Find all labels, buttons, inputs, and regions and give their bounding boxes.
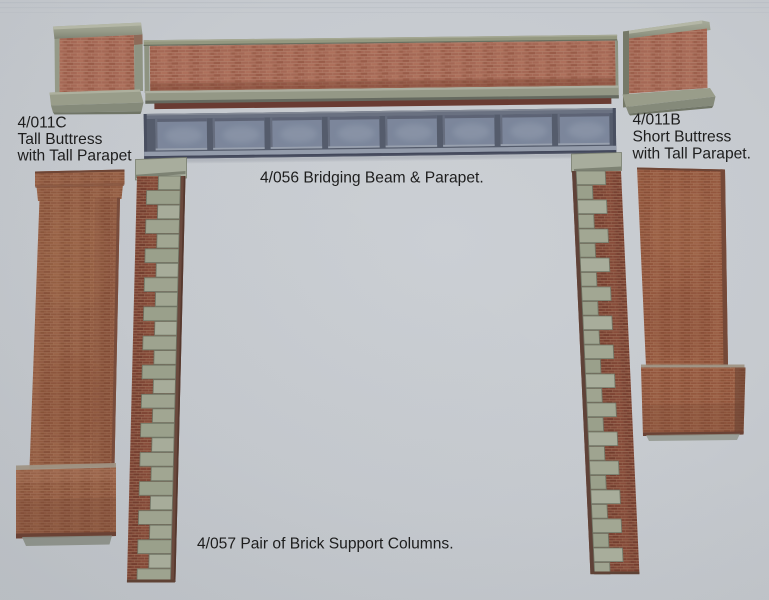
svg-text:4/056 Bridging Beam & Parapet.: 4/056 Bridging Beam & Parapet.: [260, 169, 484, 186]
svg-text:4/011B: 4/011B: [633, 112, 681, 129]
svg-text:with Tall Parapet: with Tall Parapet: [17, 148, 133, 165]
svg-text:4/011C: 4/011C: [18, 115, 67, 132]
svg-text:with Tall Parapet.: with Tall Parapet.: [632, 146, 751, 163]
svg-text:Tall Buttress: Tall Buttress: [18, 131, 103, 148]
svg-text:Short Buttress: Short Buttress: [633, 129, 732, 146]
svg-text:4/057 Pair of Brick Support Co: 4/057 Pair of Brick Support Columns.: [197, 536, 454, 553]
